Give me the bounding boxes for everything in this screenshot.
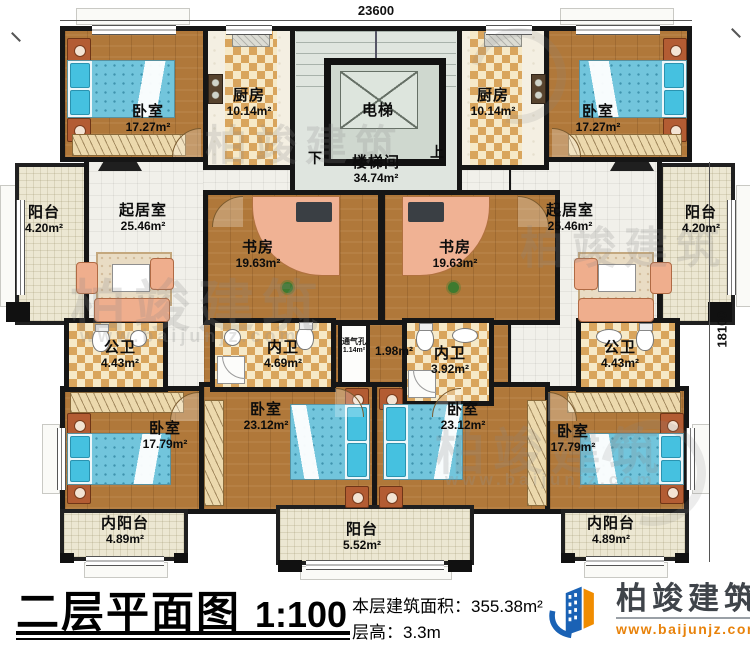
label-living-right: 起居室25.46m² xyxy=(530,203,610,233)
label-bath-inner-right: 内卫3.92m² xyxy=(406,346,494,376)
label-living-left: 起居室25.46m² xyxy=(103,203,183,233)
window-sill xyxy=(76,8,190,25)
label-inner-balcony-right: 内阳台4.89m² xyxy=(571,516,651,546)
wardrobe xyxy=(204,400,224,506)
floor-height-value: 3.3m xyxy=(403,623,441,642)
label-bath-public-left: 公卫4.43m² xyxy=(78,340,162,370)
logo-mark-icon xyxy=(546,580,608,640)
label-stairs-up: 上 xyxy=(430,142,444,162)
nightstand xyxy=(345,486,369,508)
title-underline xyxy=(16,638,350,640)
room-balcony-right xyxy=(659,163,735,325)
title-underline xyxy=(16,631,350,635)
wall-segment xyxy=(561,553,575,563)
floor-area-value: 355.38m² xyxy=(471,597,543,616)
label-bedroom-bottom-center-right: 卧室23.12m² xyxy=(423,402,503,432)
wall-segment xyxy=(6,302,30,322)
label-bath-public-right: 公卫4.43m² xyxy=(576,340,664,370)
label-stairs-down: 下 xyxy=(308,148,322,168)
corner-mark xyxy=(11,32,21,42)
plan-scale: 1:100 xyxy=(255,594,347,636)
window-sill xyxy=(736,185,750,307)
label-bedroom-top-left: 卧室17.27m² xyxy=(108,104,188,134)
elevator-car xyxy=(340,71,418,129)
wardrobe xyxy=(70,392,184,413)
wall-segment xyxy=(675,553,689,563)
sink-icon xyxy=(224,329,241,346)
coffee-table xyxy=(598,264,636,292)
dimension-width: 23600 xyxy=(340,3,412,18)
window xyxy=(306,560,444,570)
logo-divider xyxy=(616,617,750,619)
dimension-height: 18100 xyxy=(715,308,730,352)
nightstand xyxy=(67,38,91,62)
window-sill xyxy=(0,185,16,307)
window-sill xyxy=(560,8,674,25)
sink-icon xyxy=(452,328,478,343)
coffee-table xyxy=(112,264,150,292)
floor-area-row: 本层建筑面积：355.38m² xyxy=(352,594,543,620)
computer-monitor-icon xyxy=(408,202,444,222)
plant-icon xyxy=(282,282,293,293)
nightstand xyxy=(663,38,687,62)
window xyxy=(686,428,695,490)
wardrobe xyxy=(72,134,186,156)
plan-info: 本层建筑面积：355.38m² 层高：3.3m xyxy=(352,594,543,645)
wardrobe xyxy=(567,392,681,413)
armchair xyxy=(574,258,598,290)
computer-monitor-icon xyxy=(296,202,332,222)
sofa xyxy=(94,298,170,322)
nightstand xyxy=(379,486,403,508)
dimension-line-top xyxy=(60,20,692,21)
label-balcony-right: 阳台4.20m² xyxy=(665,205,737,235)
room-balcony-left xyxy=(15,163,91,325)
label-inner-balcony-left: 内阳台4.89m² xyxy=(85,516,165,546)
label-bedroom-bottom-left: 卧室17.79m² xyxy=(125,421,205,451)
floor-height-row: 层高：3.3m xyxy=(352,620,543,646)
sofa xyxy=(578,298,654,322)
label-bedroom-bottom-center-left: 卧室23.12m² xyxy=(226,402,306,432)
label-balcony-bottom: 阳台5.52m² xyxy=(322,522,402,552)
label-bedroom-top-right: 卧室17.27m² xyxy=(558,104,638,134)
window xyxy=(57,428,66,490)
window xyxy=(586,556,664,566)
wardrobe xyxy=(568,134,682,156)
label-study-left: 书房19.63m² xyxy=(215,240,301,270)
tv-icon xyxy=(98,162,142,171)
label-kitchen-right: 厨房10.14m² xyxy=(450,88,536,118)
window xyxy=(576,25,660,35)
logo-company-name: 柏竣建筑 xyxy=(616,583,750,614)
logo-text-block: 柏竣建筑 www.baijunjz.com xyxy=(616,583,750,637)
window xyxy=(92,25,176,35)
wall-segment xyxy=(448,560,472,572)
company-logo: 柏竣建筑 www.baijunjz.com xyxy=(546,580,750,640)
armchair xyxy=(150,258,174,290)
armchair xyxy=(76,262,98,294)
label-vent-shaft: 通气孔1.14m² xyxy=(339,338,369,355)
label-stairwell: 楼梯间34.74m² xyxy=(326,155,426,185)
wall-segment xyxy=(278,560,302,572)
window xyxy=(86,556,164,566)
window xyxy=(486,25,532,35)
wall-segment xyxy=(60,553,74,563)
label-elevator: 电梯 xyxy=(340,103,416,120)
armchair xyxy=(650,262,672,294)
logo-website: www.baijunjz.com xyxy=(616,621,750,637)
label-kitchen-left: 厨房10.14m² xyxy=(206,88,292,118)
window xyxy=(226,25,272,35)
label-balcony-left: 阳台4.20m² xyxy=(8,205,80,235)
label-bath-inner-left: 内卫4.69m² xyxy=(241,340,325,370)
wall-segment xyxy=(174,553,188,563)
tv-icon xyxy=(610,162,654,171)
label-study-right: 书房19.63m² xyxy=(412,240,498,270)
corner-mark xyxy=(731,28,741,38)
label-bedroom-bottom-right: 卧室17.79m² xyxy=(533,424,613,454)
floor-plan-page: 柏竣建筑 www.baijunjz.com 柏竣建筑 柏竣建筑 www.baij… xyxy=(0,0,750,650)
plant-icon xyxy=(448,282,459,293)
